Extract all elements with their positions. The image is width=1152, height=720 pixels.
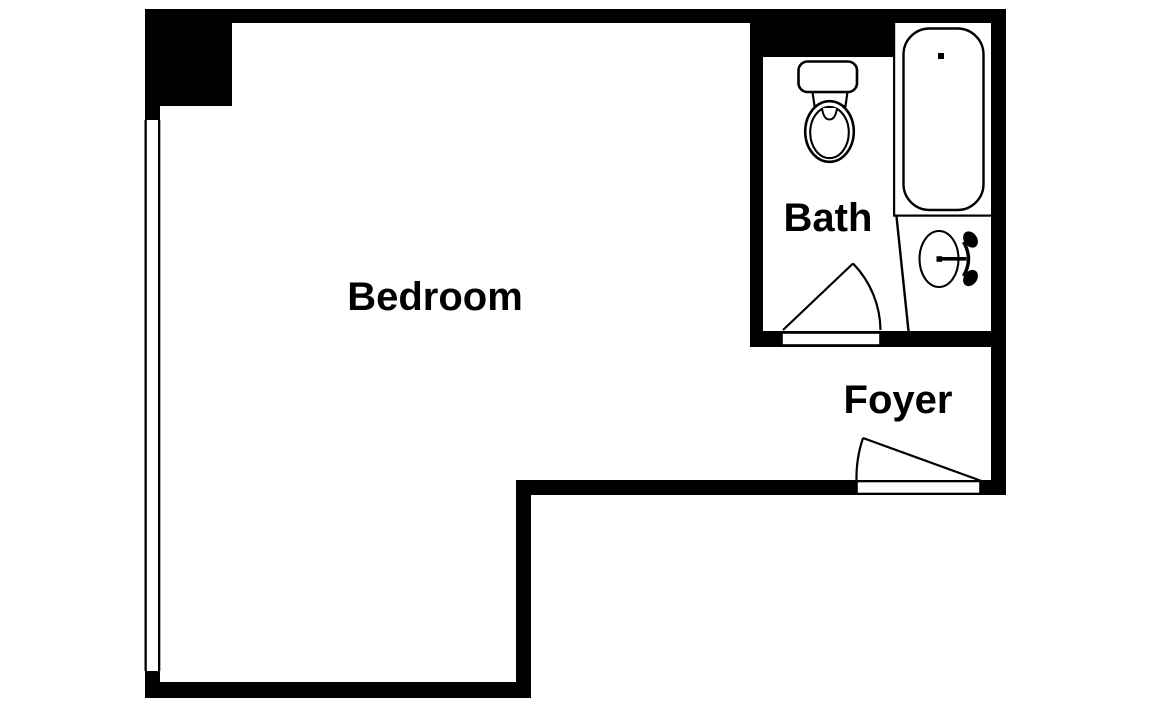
sink-drain bbox=[937, 256, 943, 262]
toilet-hinge-detail bbox=[822, 108, 837, 120]
top-left-wall-foot bbox=[145, 106, 160, 120]
tub-alcove-divider-vertical bbox=[893, 23, 895, 216]
bath-door-swing bbox=[853, 264, 881, 331]
entry-door-icon bbox=[856, 438, 981, 481]
faucet-handle-top bbox=[960, 229, 981, 251]
faucet-spout bbox=[942, 257, 967, 261]
bedroom-bottom-wall bbox=[145, 682, 531, 698]
bottom-left-wall-block bbox=[145, 671, 160, 698]
floor-plan: Bedroom Bath Foyer bbox=[0, 0, 1152, 720]
room-label-foyer: Foyer bbox=[844, 378, 953, 422]
right-wall bbox=[991, 9, 1006, 495]
step-wall-vertical bbox=[516, 480, 531, 698]
faucet-icon bbox=[942, 229, 981, 289]
bedroom-window-outer-line bbox=[145, 120, 147, 671]
toilet-icon bbox=[799, 62, 858, 162]
toilet-tank bbox=[799, 62, 858, 93]
room-label-bedroom: Bedroom bbox=[347, 275, 523, 319]
top-left-wall-block bbox=[145, 9, 232, 106]
bath-top-wall-fill bbox=[750, 9, 893, 57]
vanity-divider bbox=[897, 217, 909, 332]
bath-left-wall bbox=[750, 9, 763, 347]
tub-alcove-divider-horizontal bbox=[893, 215, 991, 217]
entry-door-sill bbox=[857, 482, 980, 494]
room-label-bath: Bath bbox=[784, 196, 873, 240]
sink-icon bbox=[920, 229, 981, 289]
bathtub-drain bbox=[938, 53, 944, 59]
walls bbox=[145, 9, 1007, 698]
bedroom-window-inner-line bbox=[158, 120, 160, 671]
room-labels: Bedroom Bath Foyer bbox=[347, 196, 952, 422]
bath-door-sill bbox=[782, 333, 880, 345]
floor-plan-canvas: Bedroom Bath Foyer bbox=[0, 0, 1152, 720]
bath-door-icon bbox=[783, 264, 881, 331]
entry-door-swing bbox=[856, 438, 863, 481]
faucet-handle-bottom bbox=[960, 267, 981, 289]
bath-door-leaf bbox=[783, 264, 853, 331]
bathtub-icon bbox=[904, 29, 984, 211]
entry-door-leaf bbox=[863, 438, 982, 481]
